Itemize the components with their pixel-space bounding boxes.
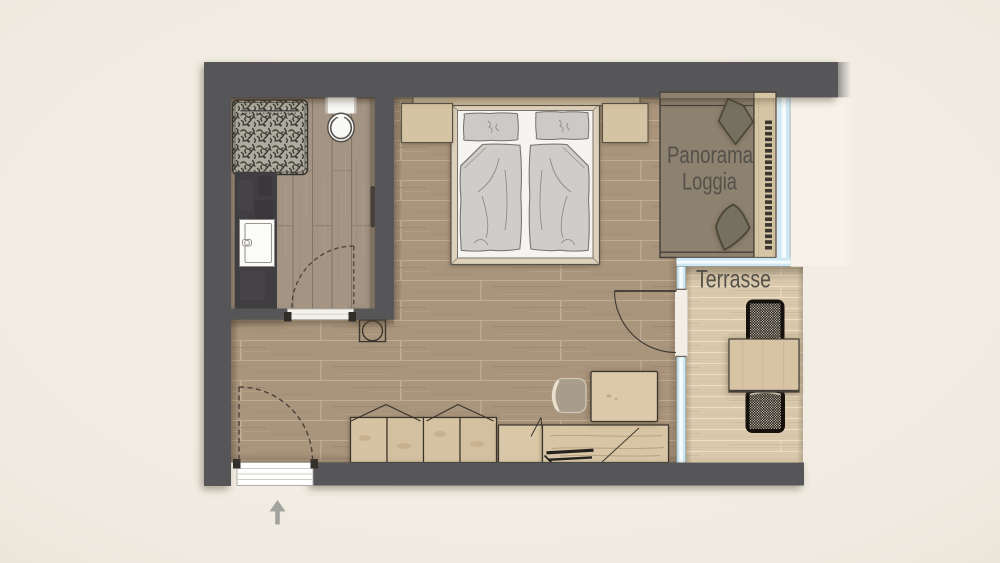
svg-text:Loggia: Loggia: [682, 169, 737, 196]
svg-text:Panorama: Panorama: [667, 142, 753, 169]
svg-text:Terrasse: Terrasse: [696, 266, 771, 294]
